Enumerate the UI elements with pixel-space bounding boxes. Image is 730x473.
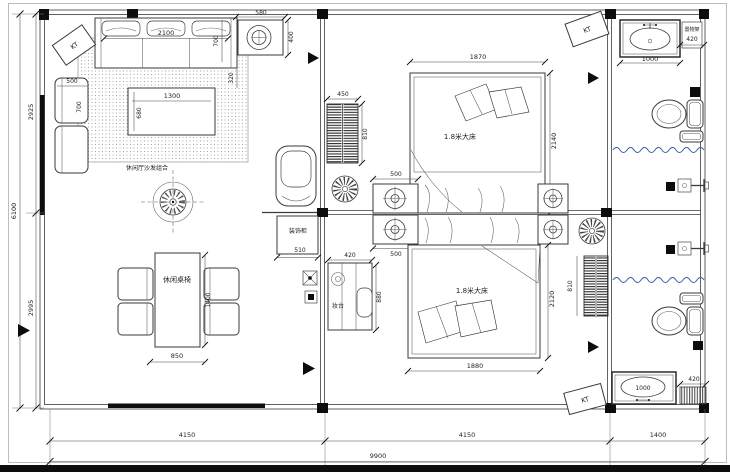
dim-radiator-width: 450 <box>337 91 349 98</box>
entry-arrow <box>588 341 599 353</box>
wall-fixture <box>693 341 703 350</box>
dim-sofa-width: 2100 <box>158 29 175 37</box>
wall-solid-segment <box>108 404 265 409</box>
nightstand-1-right <box>538 184 568 213</box>
dim-bed1-length: 2140 <box>550 133 558 150</box>
dim-span-left: 4150 <box>179 431 196 439</box>
toilet-2 <box>652 293 703 335</box>
label-dresser: 妆台 <box>332 302 344 310</box>
label-bed-1: 1.8米大床 <box>444 132 476 141</box>
dim-span-right: 1400 <box>650 431 667 439</box>
column <box>317 208 328 217</box>
wall-fixture <box>690 87 700 97</box>
page-bottom-band <box>0 465 730 472</box>
dim-bed2-length: 2120 <box>548 291 556 308</box>
floor-plan-canvas: 2100 700 320 500 700 1300 680 休闲厅沙发组合 <box>0 0 730 473</box>
dim-leisure-width: 850 <box>171 352 183 360</box>
stool <box>357 288 372 317</box>
dim-shelf1-width: 420 <box>686 36 698 43</box>
nightstand-2-left <box>373 215 418 244</box>
outlet-symbol <box>305 291 317 303</box>
dim-vent-width: 580 <box>255 10 267 17</box>
column <box>699 9 709 19</box>
fan-bedroom-1 <box>332 176 358 202</box>
dim-chair-depth: 700 <box>76 101 83 113</box>
dim-upper-height: 2925 <box>27 104 35 121</box>
dim-span-mid: 4150 <box>459 431 476 439</box>
bed-2: 1.8米大床 <box>408 217 540 358</box>
ceiling-lamp-icon <box>141 170 205 234</box>
toilet-1 <box>652 100 703 142</box>
sink-2: 1000 <box>612 372 676 404</box>
dim-sofa-edge: 320 <box>228 72 235 84</box>
dim-shelf2-width: 420 <box>688 376 700 383</box>
decor-cabinet: 装饰柜 510 <box>274 216 321 261</box>
sink-1 <box>620 20 680 57</box>
entry-arrow <box>308 52 319 64</box>
dim-sofa-depth: 700 <box>213 35 220 47</box>
dimension-left: 6100 2925 2995 <box>10 11 44 412</box>
column <box>317 403 328 413</box>
dim-radiator-height: 810 <box>362 128 369 140</box>
fan-bedroom-2 <box>579 218 605 244</box>
floor-plan-drawing: 2100 700 320 500 700 1300 680 休闲厅沙发组合 <box>0 0 730 473</box>
shelf-2: 420 <box>677 376 709 404</box>
dim-dresser-width: 420 <box>344 252 356 259</box>
switch-symbol <box>303 271 317 285</box>
leisure-table-set: 休闲桌椅 <box>118 253 239 347</box>
lounge-chair <box>276 146 316 206</box>
dim-sink2-width: 1000 <box>635 385 650 392</box>
label-sofa-group: 休闲厅沙发组合 <box>126 164 168 172</box>
label-shelf: 置物架 <box>684 26 699 33</box>
label-leisure-table: 休闲桌椅 <box>163 275 191 284</box>
radiator-1 <box>327 104 358 163</box>
entry-arrow <box>18 324 30 337</box>
ac-unit-bath2: KT <box>564 383 606 414</box>
dim-nightstand2-width: 500 <box>390 251 402 258</box>
shower-water-line <box>613 278 704 283</box>
shelf-1: 置物架 420 <box>677 22 707 48</box>
dim-coffee-table-depth: 680 <box>136 107 143 119</box>
dim-total-width: 9900 <box>370 452 387 460</box>
bed-1: 1.8米大床 <box>410 73 545 213</box>
radiator-2 <box>584 256 608 316</box>
dim-bed1-width: 1870 <box>470 53 487 61</box>
dressing-table: 妆台 420 880 <box>325 252 383 333</box>
dim-leisure-length: 1400 <box>205 292 212 307</box>
dim-dresser-length: 880 <box>376 291 383 303</box>
label-cabinet: 装饰柜 <box>289 227 307 235</box>
shower-head-2 <box>666 242 709 255</box>
column <box>39 9 49 20</box>
dim-nightstand1-width: 500 <box>390 171 402 178</box>
dim-total-height: 6100 <box>10 203 18 220</box>
dim-cabinet-width: 510 <box>294 247 306 254</box>
sheet-ruffles <box>425 217 519 243</box>
ceiling-vent: 580 400 <box>233 10 295 59</box>
column <box>317 9 328 19</box>
bedroom-2: 500 1.8米大床 1880 2120 <box>370 215 608 374</box>
bathroom-2: 1000 420 <box>612 242 709 404</box>
dimension-bottom: 4150 4150 1400 9900 <box>47 409 709 465</box>
dim-lower-height: 2995 <box>27 300 35 317</box>
label-bed-2: 1.8米大床 <box>456 286 488 295</box>
nightstand-2-right <box>538 215 568 244</box>
dim-radiator2-height: 810 <box>567 280 574 292</box>
nightstand-1-left <box>373 184 418 213</box>
bathroom-1: 1000 置物架 420 <box>613 20 709 192</box>
ac-unit-bath1: KT <box>565 11 609 47</box>
shower-head-1 <box>666 179 709 192</box>
dim-bed2-width: 1880 <box>467 362 484 370</box>
column <box>605 9 616 19</box>
entry-arrow <box>303 362 315 375</box>
entry-arrow <box>588 72 599 84</box>
corridor: 装饰柜 510 妆台 420 880 <box>274 52 383 375</box>
living-room: 2100 700 320 500 700 1300 680 休闲厅沙发组合 <box>55 18 248 365</box>
column <box>699 403 709 413</box>
wall-solid-segment <box>40 95 45 215</box>
dim-coffee-table-width: 1300 <box>164 92 181 100</box>
bedroom-1: 450 810 1.8米大床 1870 2140 <box>324 53 599 216</box>
dim-chair-width: 500 <box>66 78 78 85</box>
dim-sink1-width: 1000 <box>642 55 659 63</box>
shower-water-line <box>613 148 704 153</box>
dim-vent-height: 400 <box>288 31 295 43</box>
column <box>601 208 612 217</box>
